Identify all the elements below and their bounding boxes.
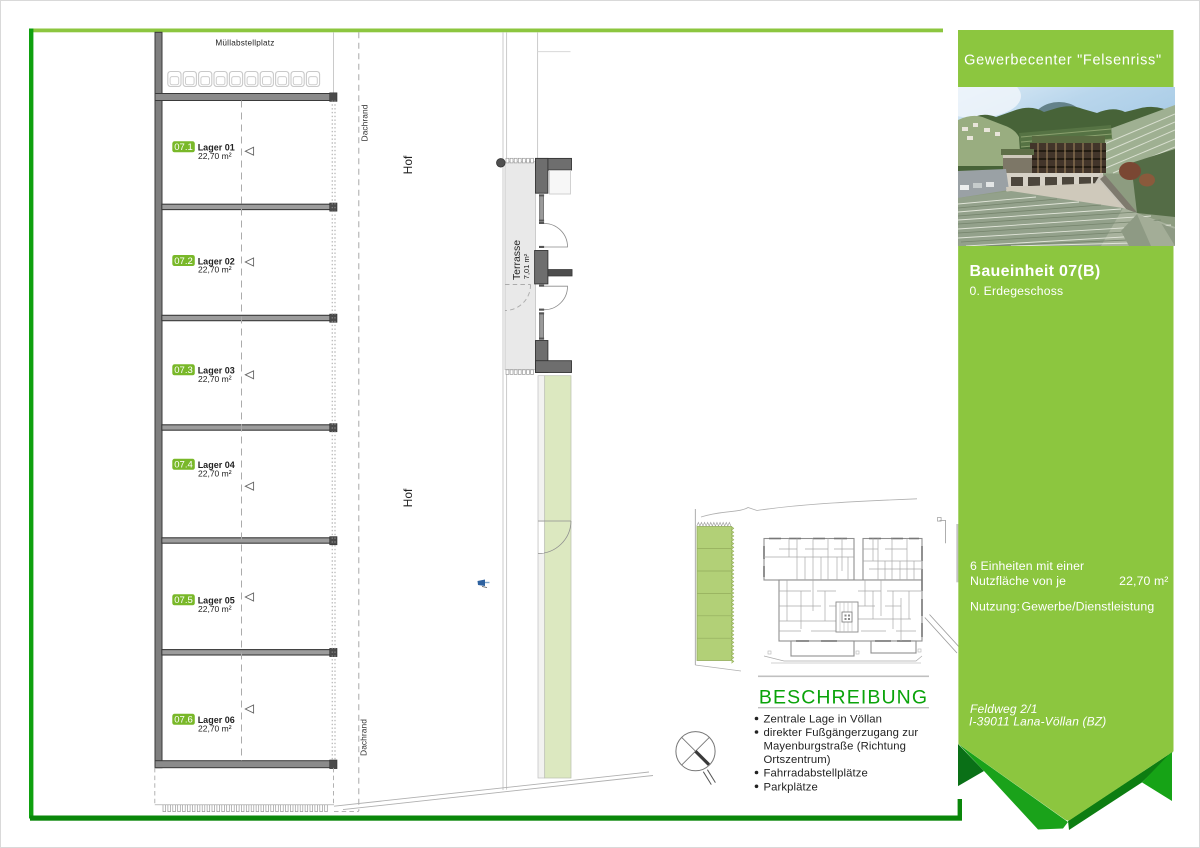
svg-text:Fahrradabstellplätze: Fahrradabstellplätze (764, 768, 868, 780)
svg-text:Mayenburgstraße (Richtung: Mayenburgstraße (Richtung (764, 741, 907, 753)
svg-text:Nutzfläche von je: Nutzfläche von je (970, 574, 1066, 588)
svg-text:22,70 m²: 22,70 m² (198, 265, 232, 275)
svg-text:0. Erdegeschoss: 0. Erdegeschoss (970, 284, 1064, 298)
svg-text:Hof: Hof (401, 488, 415, 507)
svg-text:direkter Fußgängerzugang zur: direkter Fußgängerzugang zur (764, 727, 919, 739)
svg-text:Hof: Hof (401, 155, 415, 174)
svg-text:07.3: 07.3 (174, 365, 193, 376)
svg-text:I-39011 Lana-Völlan (BZ): I-39011 Lana-Völlan (BZ) (969, 715, 1106, 729)
svg-text:Dachrand: Dachrand (359, 719, 369, 756)
svg-text:22,70 m²: 22,70 m² (198, 374, 232, 384)
svg-text:Zentrale Lage in Völlan: Zentrale Lage in Völlan (764, 714, 883, 726)
svg-text:07.2: 07.2 (174, 256, 193, 267)
svg-text:07.5: 07.5 (174, 595, 193, 606)
svg-text:6 Einheiten mit einer: 6 Einheiten mit einer (970, 559, 1084, 573)
svg-text:22,70 m²: 22,70 m² (198, 604, 232, 614)
svg-text:Gewerbecenter "Felsenriss": Gewerbecenter "Felsenriss" (964, 52, 1162, 68)
svg-text:Parkplätze: Parkplätze (764, 782, 818, 794)
svg-text:Dachrand: Dachrand (360, 104, 370, 141)
svg-text:BESCHREIBUNG: BESCHREIBUNG (759, 687, 928, 709)
svg-text:Gewerbe/Dienstleistung: Gewerbe/Dienstleistung (1022, 600, 1155, 614)
svg-text:07.1: 07.1 (174, 142, 193, 153)
svg-text:22,70 m²: 22,70 m² (198, 724, 232, 734)
svg-text:07.4: 07.4 (174, 460, 193, 471)
svg-text:22,70 m²: 22,70 m² (198, 151, 232, 161)
svg-text:Müllabstellplatz: Müllabstellplatz (215, 39, 274, 48)
svg-text:7,01 m²: 7,01 m² (522, 253, 531, 279)
svg-text:Ortszentrum): Ortszentrum) (764, 754, 831, 766)
svg-text:07.6: 07.6 (174, 715, 193, 726)
svg-text:Baueinheit 07(B): Baueinheit 07(B) (970, 263, 1101, 280)
svg-text:22,70 m²: 22,70 m² (198, 469, 232, 479)
svg-text:22,70 m²: 22,70 m² (1119, 574, 1168, 588)
svg-text:Nutzung:: Nutzung: (970, 600, 1020, 614)
